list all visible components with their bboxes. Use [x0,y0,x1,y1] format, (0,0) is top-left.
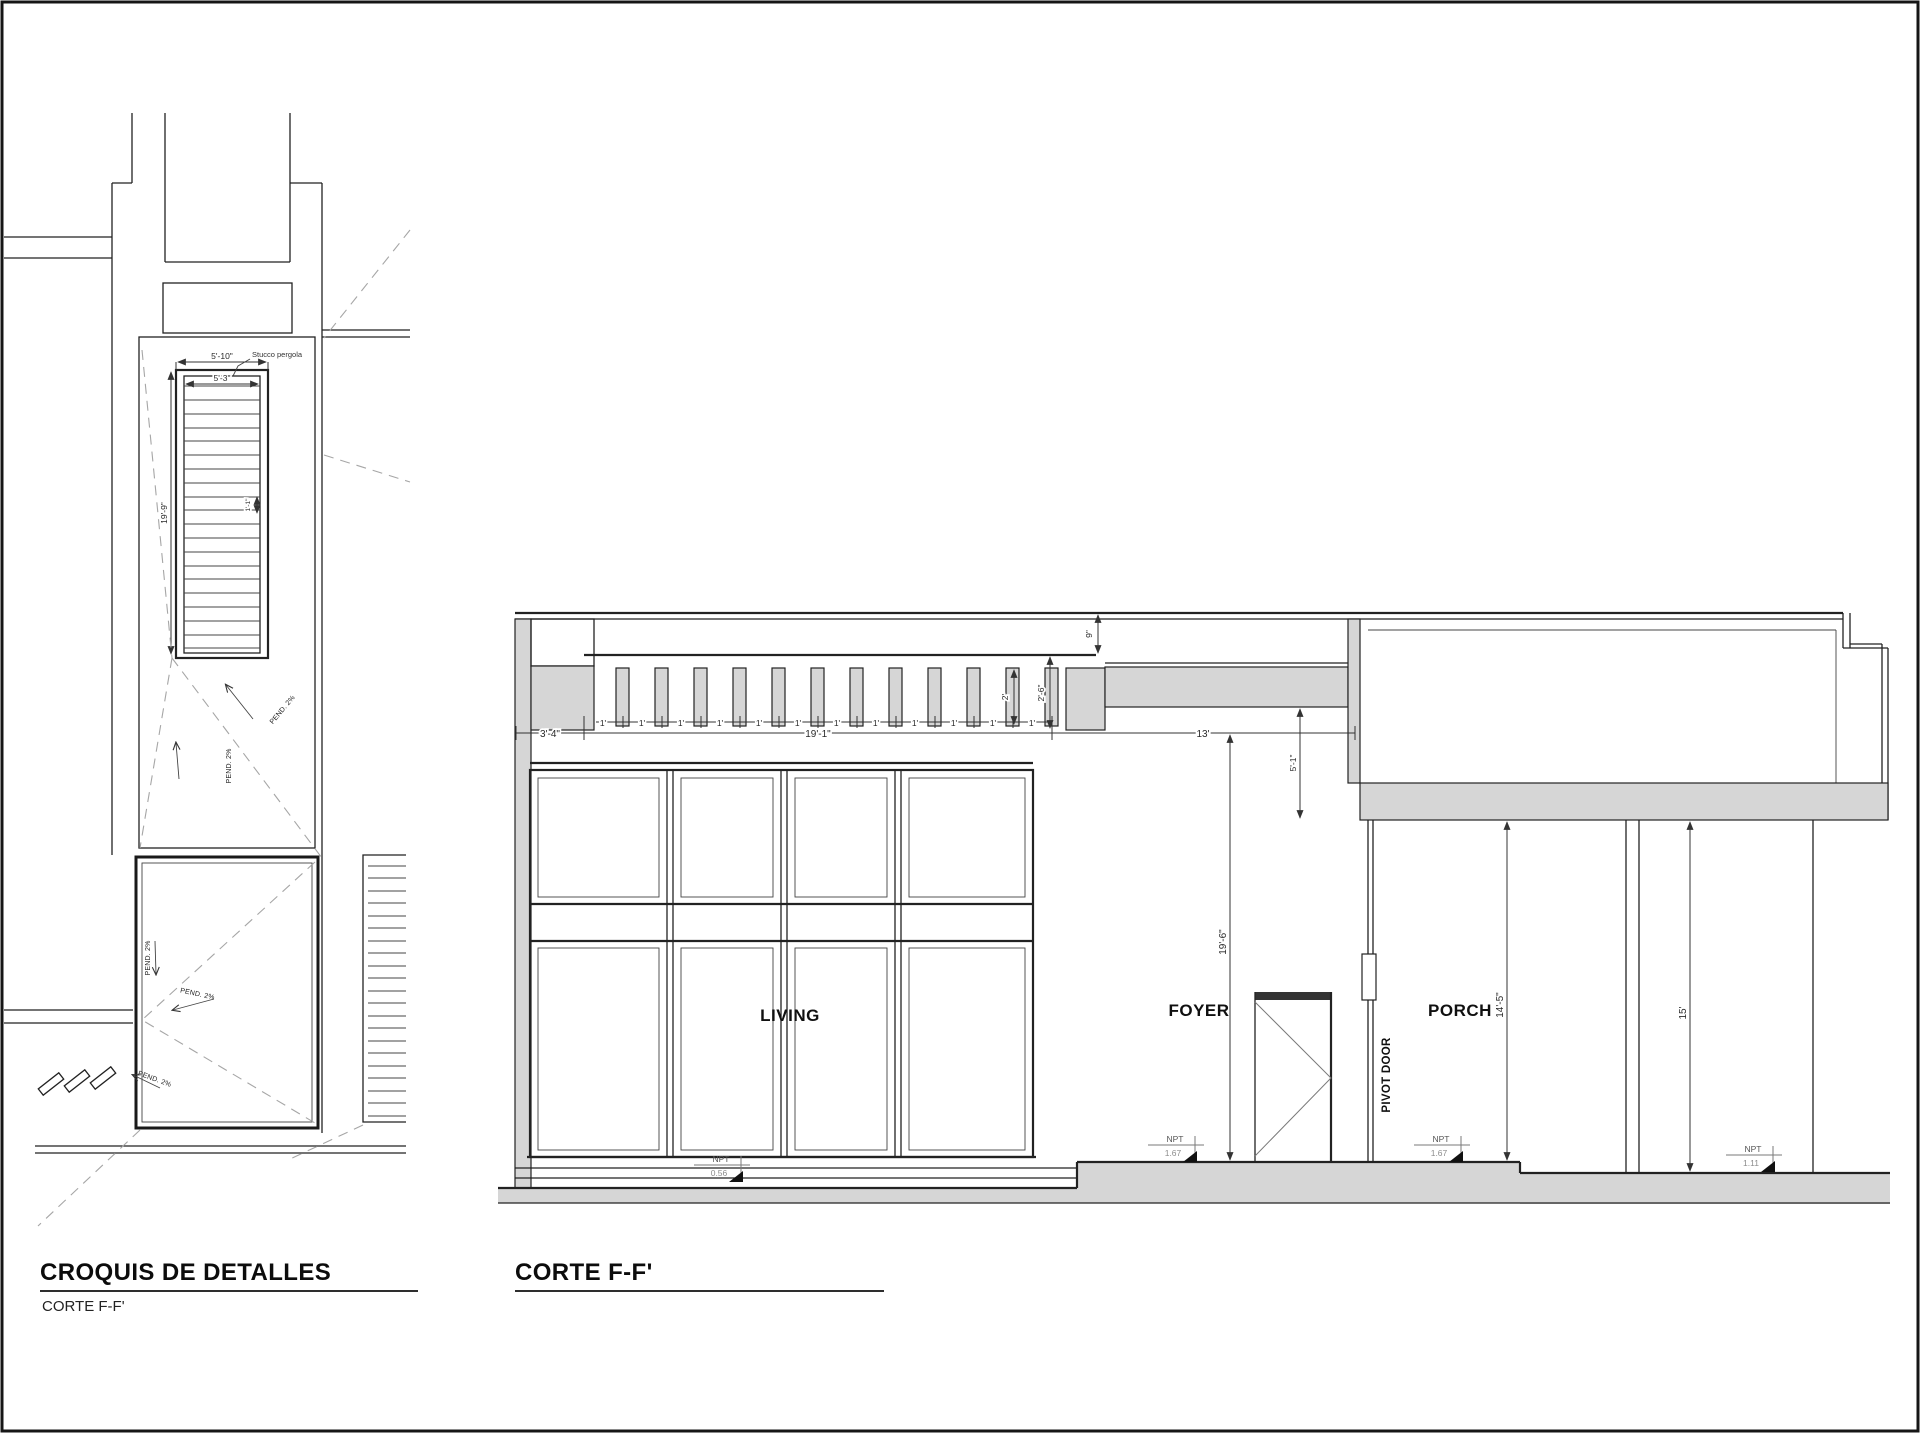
dim-module: 1' [756,718,763,728]
foyer-door: FOYER [1168,992,1331,1162]
dim-module: 1' [717,718,724,728]
living-window-wall: LIVING [527,763,1036,1157]
svg-text:NPT: NPT [1433,1134,1450,1144]
left-plan-drawing: 5'-10" 5'-3" 19'-9" 1'-1" Stucco pergola [4,113,410,1226]
dim-module: 1' [639,718,646,728]
dim-beam-drop: 5'-1" [1288,755,1298,772]
paver-hatch [38,1067,115,1095]
slope-arrow-upper-diagonal: PEND. 2% [226,685,297,726]
plan-dim-outer-width: 5'-10" [211,351,233,361]
pivot-door: PIVOT DOOR [1362,820,1393,1162]
dim-left-offset: 3'-4" [540,729,560,740]
upper-right-block [1360,613,1888,820]
level-value-foyer: 1.67 [1165,1148,1182,1158]
dim-module: 1' [600,718,607,728]
svg-text:PEND. 2%: PEND. 2% [226,748,233,783]
dim-foyer-height: 19'-6" [1218,929,1229,955]
dim-module: 1' [912,718,919,728]
level-value-exterior: 1.11 [1743,1158,1759,1168]
pergola-right-beam [1066,668,1105,730]
slope-arrow-lower-left: PEND. 2% [173,987,215,1010]
room-label-foyer: FOYER [1168,1001,1229,1020]
svg-text:NPT: NPT [1167,1134,1184,1144]
dim-module: 1' [834,718,841,728]
svg-text:PEND. 2%: PEND. 2% [269,694,297,725]
slope-arrow-bottom: PEND. 2% [133,1070,172,1089]
right-title: CORTE F-F' [515,1259,653,1286]
ground-slabs [498,1162,1890,1204]
roof-slab [515,613,1843,619]
level-marker-foyer: NPT 1.67 [1148,1134,1204,1162]
plan-dim-slat-gap: 1'-1" [245,498,252,512]
level-marker-exterior: NPT 1.11 [1726,1144,1782,1172]
plan-dim-inner-width: 5'-3" [214,373,231,383]
cad-canvas: 5'-10" 5'-3" 19'-9" 1'-1" Stucco pergola [0,0,1920,1433]
level-value-living: 0.56 [711,1168,728,1178]
lower-terrace-outline [136,857,318,1128]
right-section-drawing: 1' 1' 1' 1' 1' 1' 1' 1' 1' 1' 1' 1' 3'-4… [498,613,1890,1204]
drawing-sheet: 5'-10" 5'-3" 19'-9" 1'-1" Stucco pergola [0,0,1920,1433]
pivot-door-label: PIVOT DOOR [1381,1037,1393,1113]
dim-module: 1' [795,718,802,728]
dim-module: 1' [678,718,685,728]
title-block: CROQUIS DE DETALLES CORTE F-F' CORTE F-F… [40,1259,884,1315]
dim-module: 1' [1029,718,1036,728]
dim-porch-height: 14'-5" [1495,992,1506,1018]
porch-columns: PORCH [1428,820,1813,1173]
svg-text:NPT: NPT [1745,1144,1762,1154]
foyer-ceiling-slab [1105,619,1360,783]
dim-slat-height: 2' [1000,693,1010,700]
plan-dim-length: 19'-9" [159,502,169,524]
level-value-porch: 1.67 [1431,1148,1448,1158]
pergola-note: Stucco pergola [252,350,303,359]
pergola-plan: 5'-10" 5'-3" 19'-9" 1'-1" Stucco pergola [159,350,303,658]
pergola-dimensions: 1' 1' 1' 1' 1' 1' 1' 1' 1' 1' 1' 1' 3'-4… [516,615,1355,818]
svg-text:PEND. 2%: PEND. 2% [179,987,215,1001]
dim-right-height: 15' [1678,1006,1689,1019]
dim-module: 1' [873,718,880,728]
dim-pergola-drop: 2'-6" [1036,685,1046,702]
slope-arrow-lower-vertical: PEND. 2% [145,940,156,975]
dim-roof-edge: 9" [1084,630,1094,638]
dim-pergola-total: 19'-1" [805,729,831,740]
dim-foyer-width: 13' [1196,729,1209,740]
room-label-living: LIVING [760,1006,820,1025]
left-subtitle: CORTE F-F' [42,1298,125,1315]
slope-arrow-upper-vertical: PEND. 2% [176,743,233,784]
porch-roof-band [1360,783,1888,820]
svg-text:NPT: NPT [713,1154,730,1164]
room-label-porch: PORCH [1428,1001,1492,1020]
adjacent-walls [4,237,410,1153]
dim-module: 1' [951,718,958,728]
left-title: CROQUIS DE DETALLES [40,1259,331,1286]
level-marker-porch: NPT 1.67 [1414,1134,1470,1162]
parapet-plan [112,113,322,1133]
upper-wall [1348,619,1360,783]
dim-module: 1' [990,718,997,728]
svg-text:PEND. 2%: PEND. 2% [145,940,152,975]
louver-strip [363,855,406,1122]
